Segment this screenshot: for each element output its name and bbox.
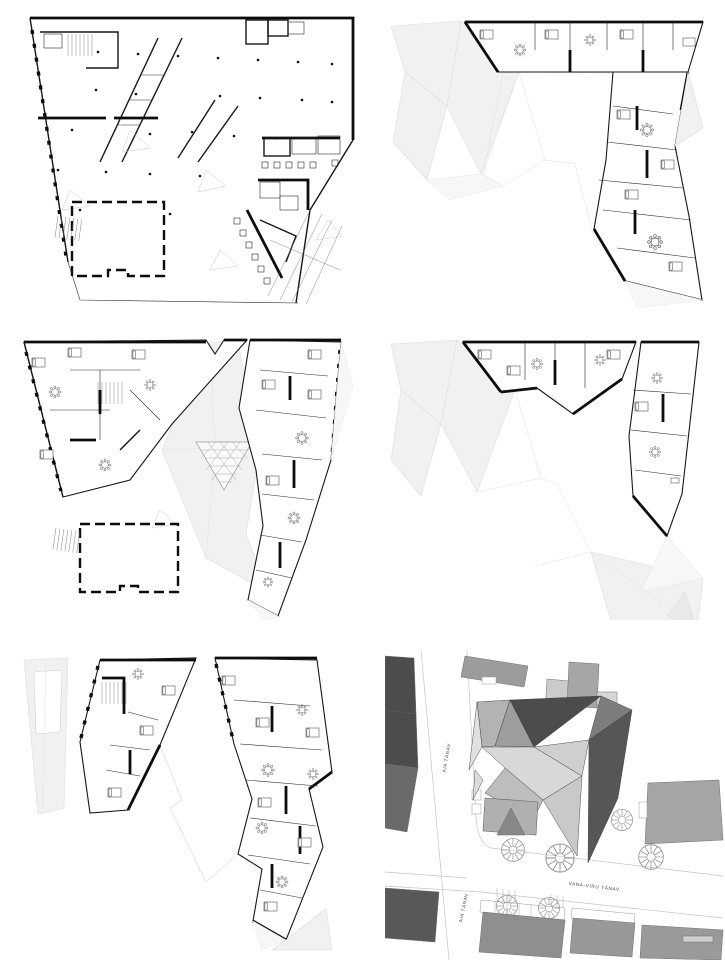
tree-icon [639, 845, 664, 870]
ground-floor-walls [38, 20, 340, 284]
stair-hatch [55, 216, 82, 241]
gable-house [483, 798, 538, 835]
street-label-aia-tanav-lower: AIA TÄNAV [457, 892, 469, 922]
skylight-triangles [62, 130, 342, 270]
apartment-band [465, 22, 703, 72]
roof-sliver-left [24, 658, 68, 814]
terrace-paving-lines [268, 210, 342, 304]
courtyard-benches [262, 160, 338, 168]
stair-hatch [68, 34, 92, 56]
drawing-sheet: AIA TÄNAV AIA TÄNAV VANA-VIRU TÄNAV [0, 0, 725, 960]
project-building-roof [469, 696, 632, 863]
street-label-vana-viru-tanav: VANA-VIRU TÄNAV [568, 880, 620, 892]
typical-floor-plan [10, 330, 355, 620]
column-grid [57, 51, 334, 216]
apartment-wedge [629, 342, 699, 536]
existing-building-dashed-outline [80, 524, 178, 592]
existing-building-dashed-outline [72, 202, 164, 276]
tree-icon [502, 839, 525, 862]
ground-floor-plan [10, 10, 360, 310]
ground-floor-outline [30, 18, 353, 303]
tree-icon [546, 844, 574, 872]
cafe-seating [234, 218, 270, 284]
tree-icon [611, 809, 632, 830]
right-apartment-band [215, 658, 332, 940]
street-label-aia-tanav-upper: AIA TÄNAV [441, 742, 452, 772]
top-floor-plan [385, 330, 715, 620]
left-apartment-wedge [80, 658, 196, 813]
penthouse-floor-plan [10, 650, 355, 955]
second-floor-plan [385, 10, 715, 310]
site-plan: AIA TÄNAV AIA TÄNAV VANA-VIRU TÄNAV [385, 650, 725, 960]
courtyard-faint-outline [160, 745, 238, 882]
